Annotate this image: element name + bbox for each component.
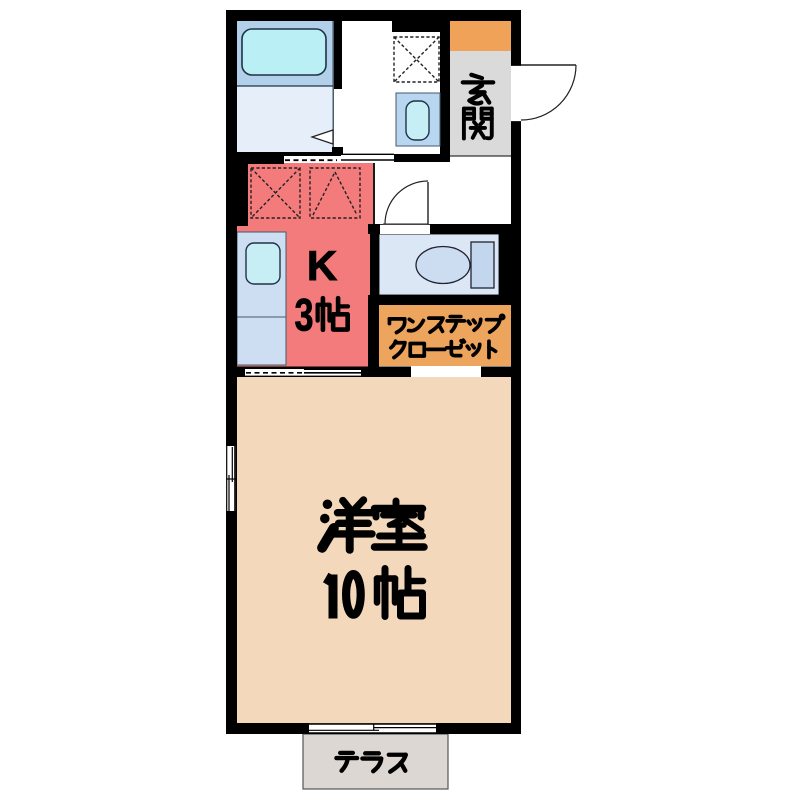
svg-text:3: 3	[295, 290, 314, 341]
svg-text:K: K	[307, 242, 337, 289]
